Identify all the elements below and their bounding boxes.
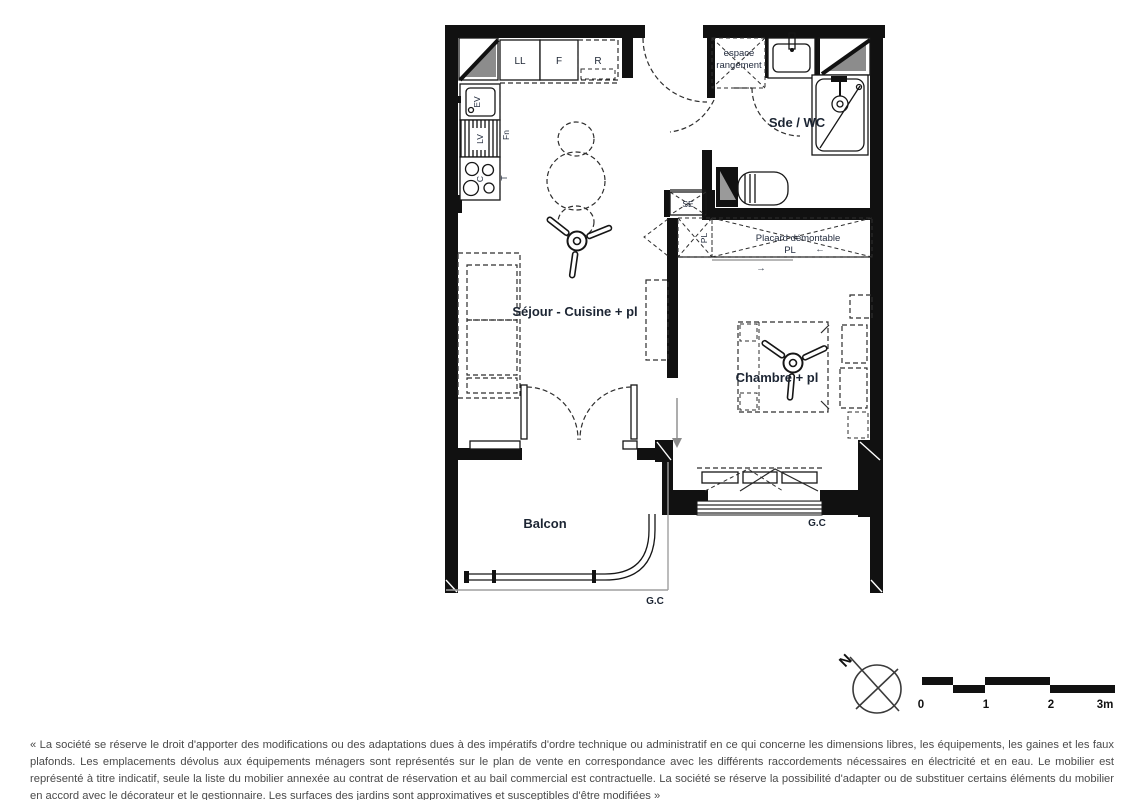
right-arrow-glyph: →: [756, 263, 766, 274]
scale-label-3m: 3m: [1097, 699, 1114, 711]
kitchen-label-f: F: [556, 56, 562, 67]
kitchen-label-ev: EV: [472, 96, 482, 108]
espace-rangement-label-2: rangement: [716, 60, 762, 71]
bedroom-window: [697, 468, 822, 515]
room-label-chambre: Chambre + pl: [736, 370, 819, 385]
kitchen-corner-cabinet: [459, 38, 498, 80]
placard-demontable-label: Placard démontable: [756, 233, 841, 244]
french-doors: [470, 385, 637, 449]
room-label-sejour: Séjour - Cuisine + pl: [512, 304, 637, 319]
kitchen-label-fn: Fn: [501, 130, 511, 140]
compass-icon: N: [836, 651, 901, 713]
floor-plan-page: LL F R EV LV C Fn T espace rangement Sde…: [0, 0, 1141, 800]
scale-label-0: 0: [918, 699, 924, 711]
room-label-sde-wc: Sde / WC: [769, 115, 826, 130]
se-closet-label: SE: [682, 199, 694, 209]
washbasin: [768, 33, 815, 78]
kitchen-label-t: T: [499, 175, 509, 180]
kitchen-label-lv: LV: [475, 134, 485, 144]
legal-disclaimer: « La société se réserve le droit d'appor…: [30, 737, 1114, 800]
kitchen-label-ll: LL: [514, 56, 526, 67]
sofa: [458, 253, 520, 398]
floor-plan-drawing: LL F R EV LV C Fn T espace rangement Sde…: [0, 0, 1141, 735]
room-label-balcon: Balcon: [523, 516, 566, 531]
kitchen-label-r: R: [594, 56, 601, 67]
scale-label-1: 1: [983, 699, 990, 711]
living-shelf: [646, 280, 668, 360]
espace-rangement-label-1: espace: [724, 48, 755, 59]
kitchen-label-c: C: [475, 176, 485, 182]
guardrail-label-bedroom: G.C: [808, 518, 826, 529]
scale-label-2: 2: [1048, 699, 1054, 711]
scale-bar: 0 1 2 3m: [918, 677, 1115, 711]
guardrail-label-balcony: G.C: [646, 596, 664, 607]
placard-pl-label: PL: [784, 245, 796, 256]
left-arrow-glyph: ←: [815, 244, 825, 255]
ceiling-fan-living: [546, 216, 612, 278]
bedroom-nightstands: [840, 295, 872, 438]
bathroom-corner-cabinet: [818, 38, 870, 75]
toilet: [716, 167, 788, 207]
compass-north-label: N: [836, 651, 856, 671]
hall-closet-pl-label: PL: [699, 233, 709, 244]
down-arrow-icon: [672, 398, 682, 448]
